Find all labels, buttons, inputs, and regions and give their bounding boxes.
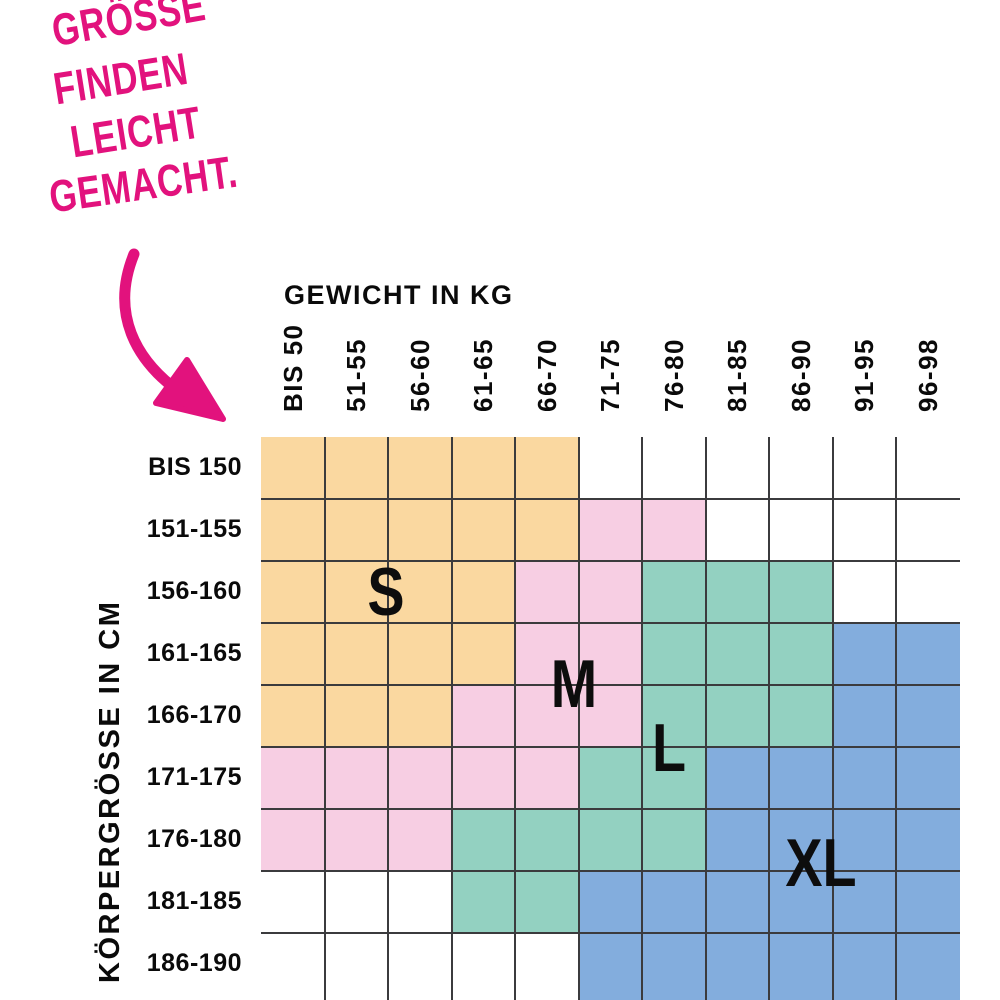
grid-line-vertical: [895, 437, 897, 1000]
grid-cell: [642, 871, 706, 933]
grid-cell: [579, 871, 643, 933]
column-label: 91-95: [851, 338, 877, 412]
grid-cell: [261, 437, 325, 499]
grid-cell: [579, 561, 643, 623]
column-label: 61-65: [470, 338, 496, 412]
row-label: 171-175: [0, 765, 242, 790]
grid-cell: [325, 685, 389, 747]
grid-cell: [579, 933, 643, 1000]
grid-line-vertical: [641, 437, 643, 1000]
grid-cell: [769, 437, 833, 499]
grid-cell: [642, 623, 706, 685]
column-label: 81-85: [724, 338, 750, 412]
grid-cell: [261, 871, 325, 933]
grid-cell: [833, 561, 897, 623]
grid-cell: [388, 623, 452, 685]
grid-line-horizontal: [261, 808, 960, 810]
grid-cell: [261, 747, 325, 809]
grid-cell: [388, 499, 452, 561]
grid-cell: [579, 499, 643, 561]
grid-cell: [706, 561, 770, 623]
grid-cell: [452, 499, 516, 561]
grid-cell: [261, 809, 325, 871]
column-label: 71-75: [597, 338, 623, 412]
row-label: 166-170: [0, 703, 242, 728]
grid-cell: [452, 747, 516, 809]
grid-line-horizontal: [261, 684, 960, 686]
row-label: 161-165: [0, 641, 242, 666]
headline-line-1: GRÖSSE: [48, 0, 210, 57]
grid-cell: [896, 871, 960, 933]
grid-cell: [388, 437, 452, 499]
grid-cell: [388, 933, 452, 1000]
grid-cell: [261, 933, 325, 1000]
grid-cell: [261, 685, 325, 747]
grid-line-vertical: [514, 437, 516, 1000]
grid-cell: [579, 437, 643, 499]
column-label: BIS 50: [280, 324, 306, 413]
grid-line-vertical: [387, 437, 389, 1000]
grid-cell: [579, 809, 643, 871]
grid-cell: [388, 809, 452, 871]
grid-cell: [452, 437, 516, 499]
grid-cell: [642, 437, 706, 499]
grid-cell: [452, 685, 516, 747]
grid-cell: [325, 871, 389, 933]
grid-cell: [325, 933, 389, 1000]
grid-cell: [579, 747, 643, 809]
grid-cell: [452, 809, 516, 871]
grid-cell: [769, 685, 833, 747]
grid-cell: [896, 933, 960, 1000]
column-label: 96-98: [915, 338, 941, 412]
column-label: 56-60: [407, 338, 433, 412]
size-chart-infographic: GRÖSSE FINDEN LEICHT GEMACHT. GEWICHT IN…: [0, 0, 1000, 1000]
grid-cell: [452, 871, 516, 933]
grid-cell: [452, 623, 516, 685]
column-label: 86-90: [788, 338, 814, 412]
grid-cell: [261, 499, 325, 561]
row-label: BIS 150: [0, 455, 242, 480]
grid-cell: [769, 623, 833, 685]
grid-cell: [515, 499, 579, 561]
grid-cell: [642, 809, 706, 871]
grid-cell: [706, 685, 770, 747]
grid-cell: [706, 871, 770, 933]
grid-cell: [642, 561, 706, 623]
grid-line-horizontal: [261, 746, 960, 748]
grid-cell: [706, 437, 770, 499]
grid-cell: [896, 809, 960, 871]
grid-cell: [833, 437, 897, 499]
grid-cell: [515, 933, 579, 1000]
grid-cell: [896, 623, 960, 685]
grid-cell: [706, 809, 770, 871]
grid-line-vertical: [324, 437, 326, 1000]
grid-cell: [896, 499, 960, 561]
grid-cell: [833, 623, 897, 685]
grid-cell: [896, 437, 960, 499]
grid-cell: [515, 747, 579, 809]
grid-cell: [515, 437, 579, 499]
grid-cell: [896, 561, 960, 623]
grid-line-vertical: [705, 437, 707, 1000]
grid-cell: [452, 933, 516, 1000]
row-label: 186-190: [0, 951, 242, 976]
grid-cell: [388, 871, 452, 933]
column-label: 76-80: [661, 338, 687, 412]
grid-cell: [642, 933, 706, 1000]
grid-cell: [325, 809, 389, 871]
grid-cell: [642, 499, 706, 561]
grid-cell: [515, 871, 579, 933]
row-label: 151-155: [0, 517, 242, 542]
grid-cell: [388, 747, 452, 809]
grid-line-vertical: [768, 437, 770, 1000]
grid-cell: [706, 933, 770, 1000]
grid-cell: [325, 623, 389, 685]
size-letter-m: M: [551, 650, 597, 718]
grid-cell: [769, 747, 833, 809]
size-letter-xl: XL: [785, 829, 856, 897]
grid-cell: [896, 747, 960, 809]
grid-cell: [325, 747, 389, 809]
grid-cell: [325, 437, 389, 499]
x-axis-title: GEWICHT IN KG: [284, 280, 514, 311]
grid-cell: [769, 933, 833, 1000]
grid-cell: [515, 809, 579, 871]
size-letter-l: L: [652, 714, 686, 782]
column-label: 66-70: [534, 338, 560, 412]
grid-cell: [706, 499, 770, 561]
grid-cell: [452, 561, 516, 623]
grid-cell: [388, 685, 452, 747]
grid-line-horizontal: [261, 622, 960, 624]
size-letter-s: S: [367, 558, 404, 626]
grid-line-horizontal: [261, 560, 960, 562]
grid-cell: [896, 685, 960, 747]
grid-line-horizontal: [261, 498, 960, 500]
grid-cell: [706, 747, 770, 809]
grid-cell: [261, 561, 325, 623]
grid-line-horizontal: [261, 932, 960, 934]
grid-cell: [833, 499, 897, 561]
grid-cell: [833, 685, 897, 747]
row-label: 156-160: [0, 579, 242, 604]
grid-cell: [261, 623, 325, 685]
grid-cell: [706, 623, 770, 685]
column-label: 51-55: [343, 338, 369, 412]
grid-cell: [515, 561, 579, 623]
grid-cell: [325, 499, 389, 561]
row-label: 181-185: [0, 889, 242, 914]
row-label: 176-180: [0, 827, 242, 852]
grid-cell: [769, 561, 833, 623]
grid-line-vertical: [832, 437, 834, 1000]
grid-cell: [769, 499, 833, 561]
grid-cell: [833, 747, 897, 809]
grid-line-vertical: [451, 437, 453, 1000]
grid-cell: [833, 933, 897, 1000]
